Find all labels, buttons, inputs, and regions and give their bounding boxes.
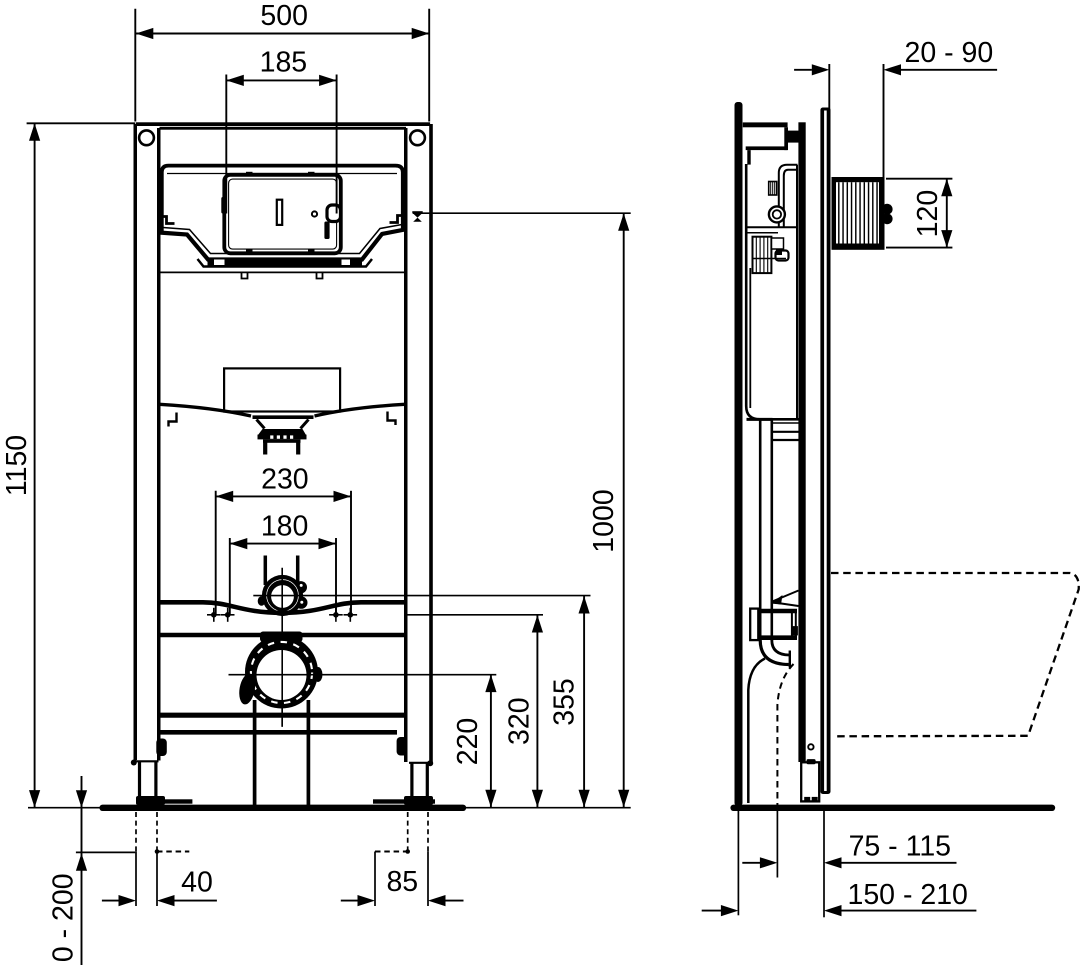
svg-text:230: 230 bbox=[261, 464, 309, 496]
svg-text:1150: 1150 bbox=[1, 435, 33, 496]
svg-text:150 - 210: 150 - 210 bbox=[847, 879, 967, 911]
svg-text:220: 220 bbox=[452, 718, 484, 766]
svg-text:185: 185 bbox=[260, 47, 308, 79]
svg-text:20 - 90: 20 - 90 bbox=[905, 37, 994, 69]
svg-text:355: 355 bbox=[548, 678, 580, 726]
svg-text:0 - 200: 0 - 200 bbox=[47, 873, 79, 962]
svg-text:40: 40 bbox=[181, 866, 213, 898]
svg-text:120: 120 bbox=[912, 190, 944, 238]
svg-text:180: 180 bbox=[261, 511, 309, 543]
svg-text:85: 85 bbox=[386, 866, 418, 898]
svg-text:75 - 115: 75 - 115 bbox=[849, 831, 951, 863]
svg-text:1000: 1000 bbox=[588, 489, 620, 552]
svg-text:500: 500 bbox=[260, 0, 308, 32]
svg-text:320: 320 bbox=[504, 697, 536, 745]
